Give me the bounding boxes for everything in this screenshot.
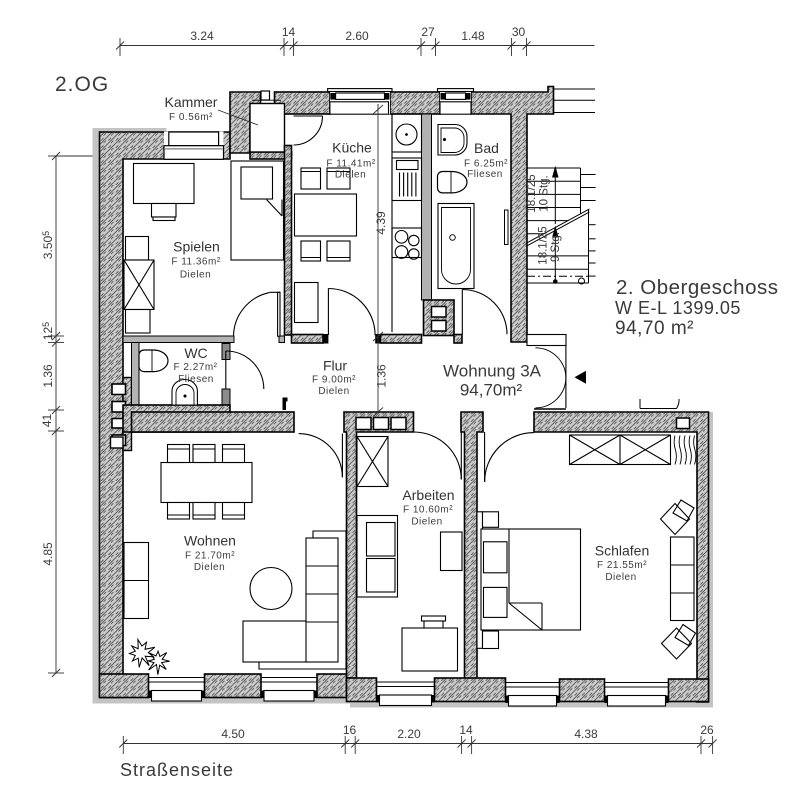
svg-text:Fliesen: Fliesen — [467, 169, 503, 180]
svg-text:Dielen: Dielen — [180, 270, 211, 281]
svg-text:W E-L 1399.05: W E-L 1399.05 — [615, 298, 741, 318]
svg-text:Straßenseite: Straßenseite — [120, 760, 234, 780]
svg-text:Dielen: Dielen — [411, 517, 442, 528]
svg-text:Dielen: Dielen — [605, 572, 636, 583]
svg-text:26: 26 — [700, 723, 714, 737]
svg-text:WC: WC — [184, 345, 207, 361]
svg-text:2.20: 2.20 — [397, 727, 421, 741]
svg-text:F 21.55m²: F 21.55m² — [597, 560, 647, 571]
svg-text:1.36: 1.36 — [41, 364, 55, 388]
svg-text:Spielen: Spielen — [173, 239, 220, 255]
svg-text:4.38: 4.38 — [574, 727, 598, 741]
svg-text:4.85: 4.85 — [41, 542, 55, 566]
svg-text:Fliesen: Fliesen — [178, 374, 214, 385]
svg-text:F 9.00m²: F 9.00m² — [312, 375, 356, 386]
svg-text:2. Obergeschoss: 2. Obergeschoss — [616, 276, 778, 299]
svg-text:F 11.41m²: F 11.41m² — [326, 159, 375, 170]
svg-text:Wohnen: Wohnen — [184, 533, 236, 549]
svg-text:1.48: 1.48 — [461, 29, 485, 43]
svg-text:F 11.36m²: F 11.36m² — [171, 257, 220, 268]
svg-text:10 Stg.: 10 Stg. — [539, 175, 551, 211]
svg-text:94,70 m²: 94,70 m² — [615, 318, 694, 339]
svg-text:Dielen: Dielen — [335, 170, 366, 181]
svg-text:4.39: 4.39 — [374, 211, 388, 235]
svg-text:18.1/25: 18.1/25 — [526, 174, 538, 212]
svg-text:Dielen: Dielen — [318, 386, 349, 397]
svg-text:Kammer: Kammer — [165, 94, 218, 110]
svg-text:27: 27 — [421, 25, 435, 39]
svg-text:F 10.60m²: F 10.60m² — [403, 505, 453, 516]
svg-text:Küche: Küche — [332, 140, 372, 156]
svg-text:Wohnung 3A: Wohnung 3A — [443, 362, 542, 381]
svg-text:Bad: Bad — [474, 140, 499, 156]
svg-text:2.OG: 2.OG — [55, 73, 109, 96]
svg-text:4.50: 4.50 — [221, 727, 245, 741]
svg-text:2.60: 2.60 — [345, 29, 369, 43]
svg-text:1.36: 1.36 — [375, 364, 389, 388]
svg-text:18.1/25: 18.1/25 — [538, 226, 550, 264]
svg-text:F 6.25m²: F 6.25m² — [464, 159, 508, 170]
svg-text:F 21.70m²: F 21.70m² — [185, 551, 235, 562]
svg-text:14: 14 — [282, 25, 296, 39]
svg-text:30: 30 — [512, 25, 526, 39]
svg-text:9 Stg.: 9 Stg. — [550, 232, 562, 262]
svg-text:Schlafen: Schlafen — [595, 543, 649, 559]
svg-text:F 0.56m²: F 0.56m² — [169, 112, 213, 123]
svg-text:Flur: Flur — [323, 358, 347, 374]
svg-text:14: 14 — [459, 723, 473, 737]
svg-text:94,70m²: 94,70m² — [460, 381, 523, 400]
svg-text:F 2.27m²: F 2.27m² — [173, 362, 217, 373]
svg-text:3.24: 3.24 — [190, 29, 214, 43]
svg-text:Dielen: Dielen — [194, 562, 225, 573]
svg-text:41: 41 — [40, 414, 54, 428]
svg-text:16: 16 — [343, 723, 357, 737]
svg-text:Arbeiten: Arbeiten — [402, 487, 454, 503]
